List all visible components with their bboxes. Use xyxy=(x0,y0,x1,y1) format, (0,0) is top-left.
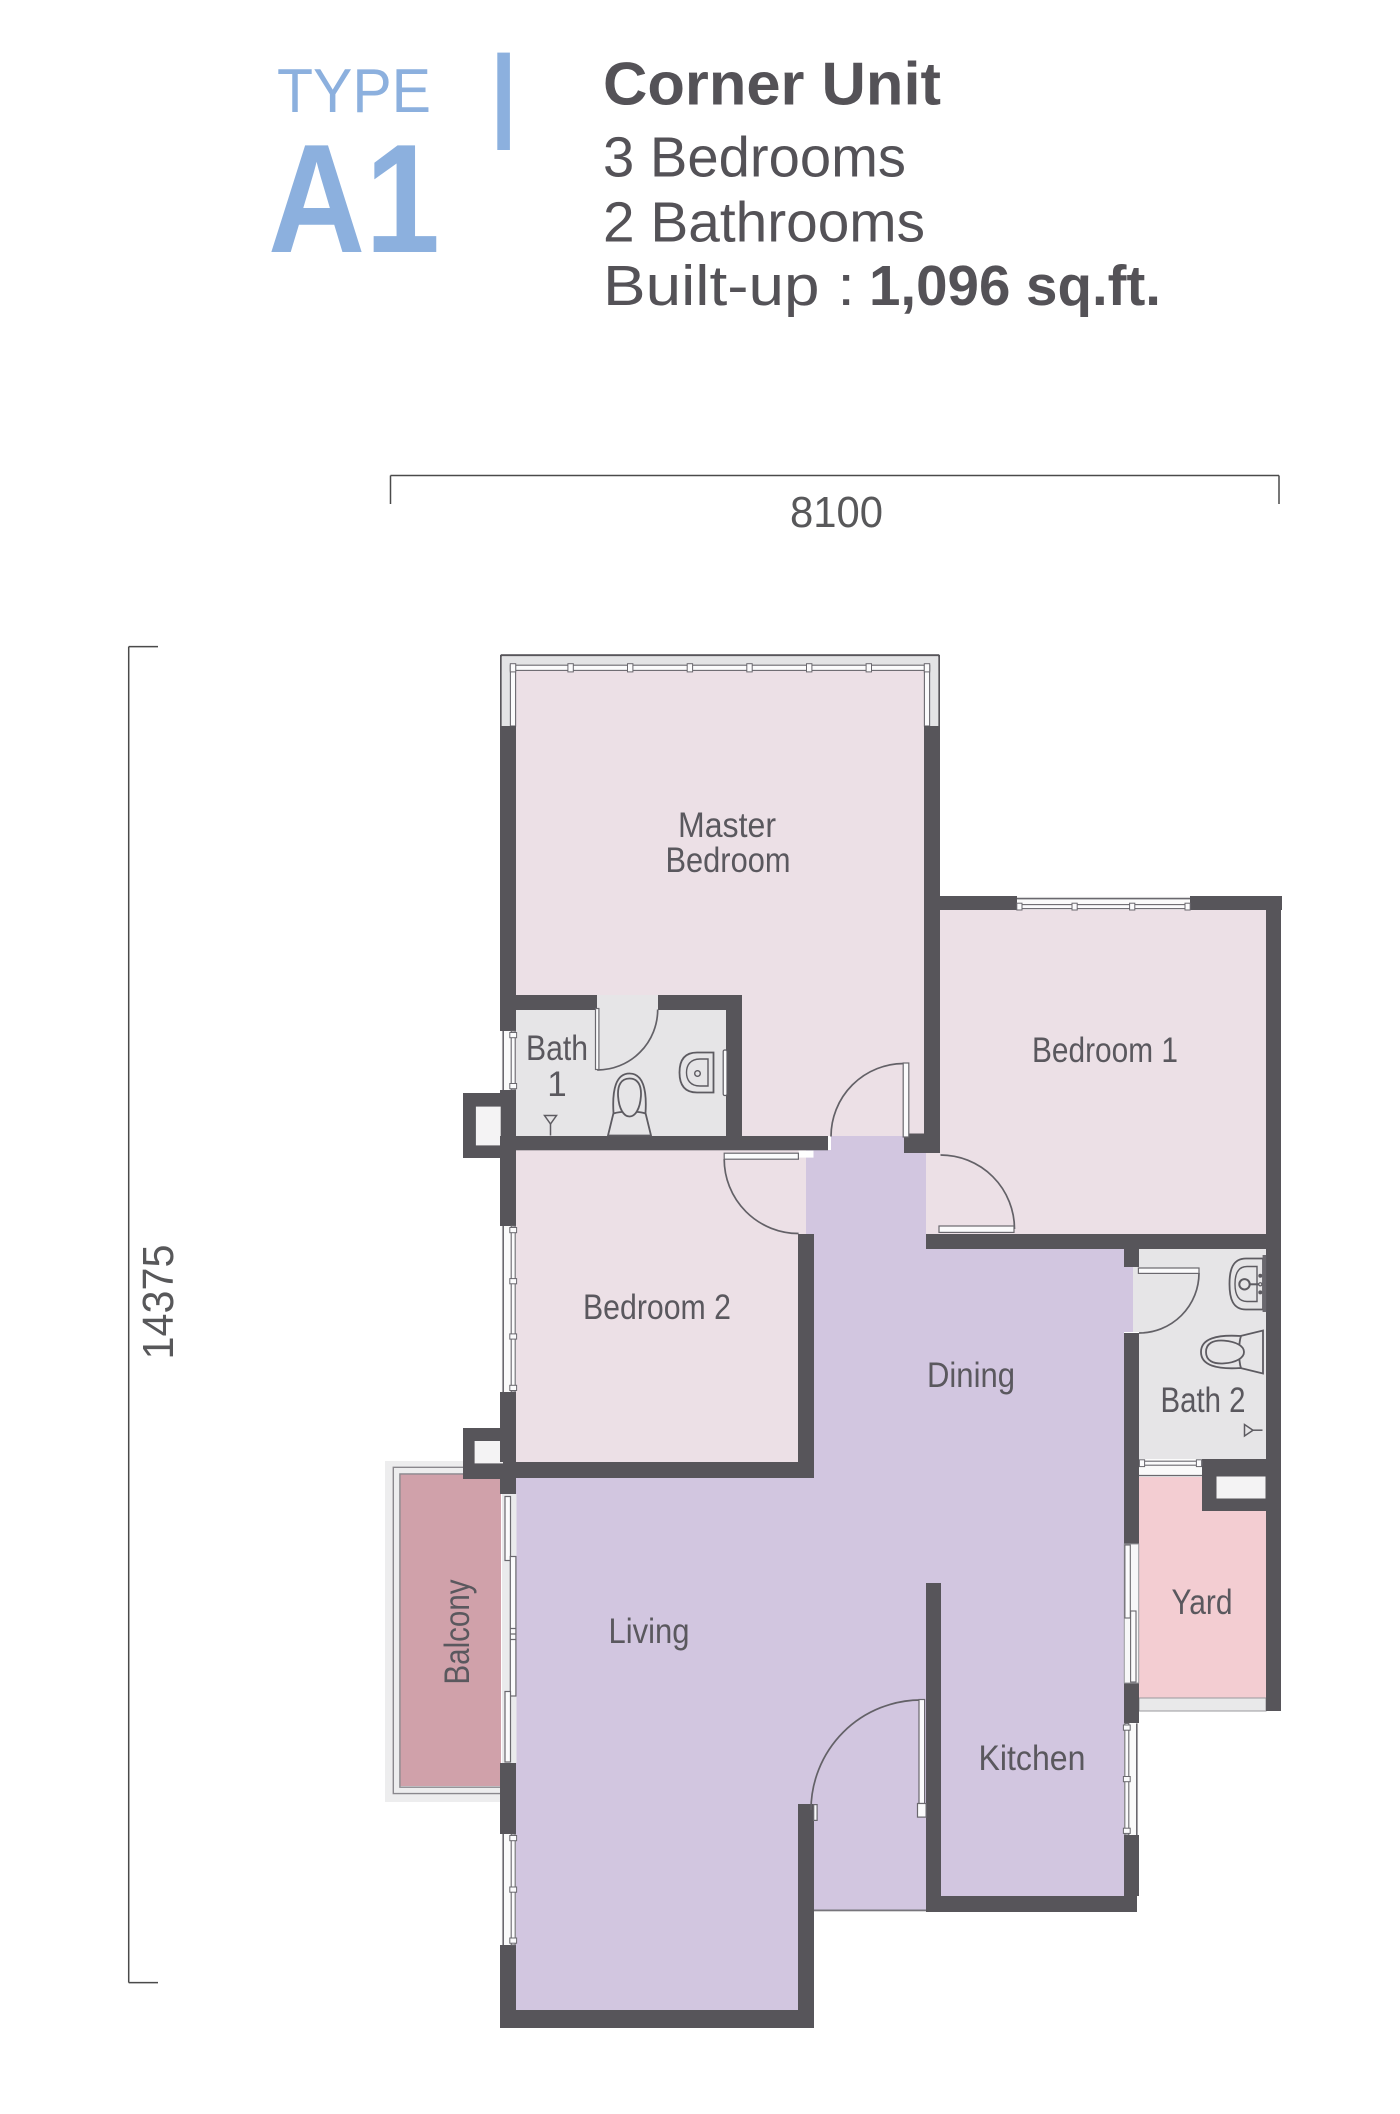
svg-text:1: 1 xyxy=(547,1065,566,1104)
svg-text:A1: A1 xyxy=(268,112,440,285)
svg-text:Dining: Dining xyxy=(927,1356,1015,1395)
svg-text:Balcony: Balcony xyxy=(438,1579,477,1684)
svg-text:Bedroom 1: Bedroom 1 xyxy=(1032,1031,1178,1070)
svg-text:Yard: Yard xyxy=(1172,1583,1233,1622)
svg-text:Living: Living xyxy=(609,1612,690,1651)
svg-text:14375: 14375 xyxy=(134,1245,183,1360)
svg-text:Bedroom 2: Bedroom 2 xyxy=(583,1288,731,1327)
svg-text:2 Bathrooms: 2 Bathrooms xyxy=(603,191,925,255)
svg-text:Kitchen: Kitchen xyxy=(979,1739,1086,1778)
svg-text:Bedroom: Bedroom xyxy=(666,841,791,880)
svg-text:Bath 2: Bath 2 xyxy=(1161,1381,1246,1420)
svg-text:Built-up :1,096 sq.ft.: Built-up :1,096 sq.ft. xyxy=(603,254,1161,318)
svg-text:Bath: Bath xyxy=(526,1029,588,1068)
svg-text:Master: Master xyxy=(678,806,776,845)
svg-text:3 Bedrooms: 3 Bedrooms xyxy=(603,125,906,189)
svg-text:Corner Unit: Corner Unit xyxy=(603,51,941,118)
svg-text:8100: 8100 xyxy=(790,488,883,537)
